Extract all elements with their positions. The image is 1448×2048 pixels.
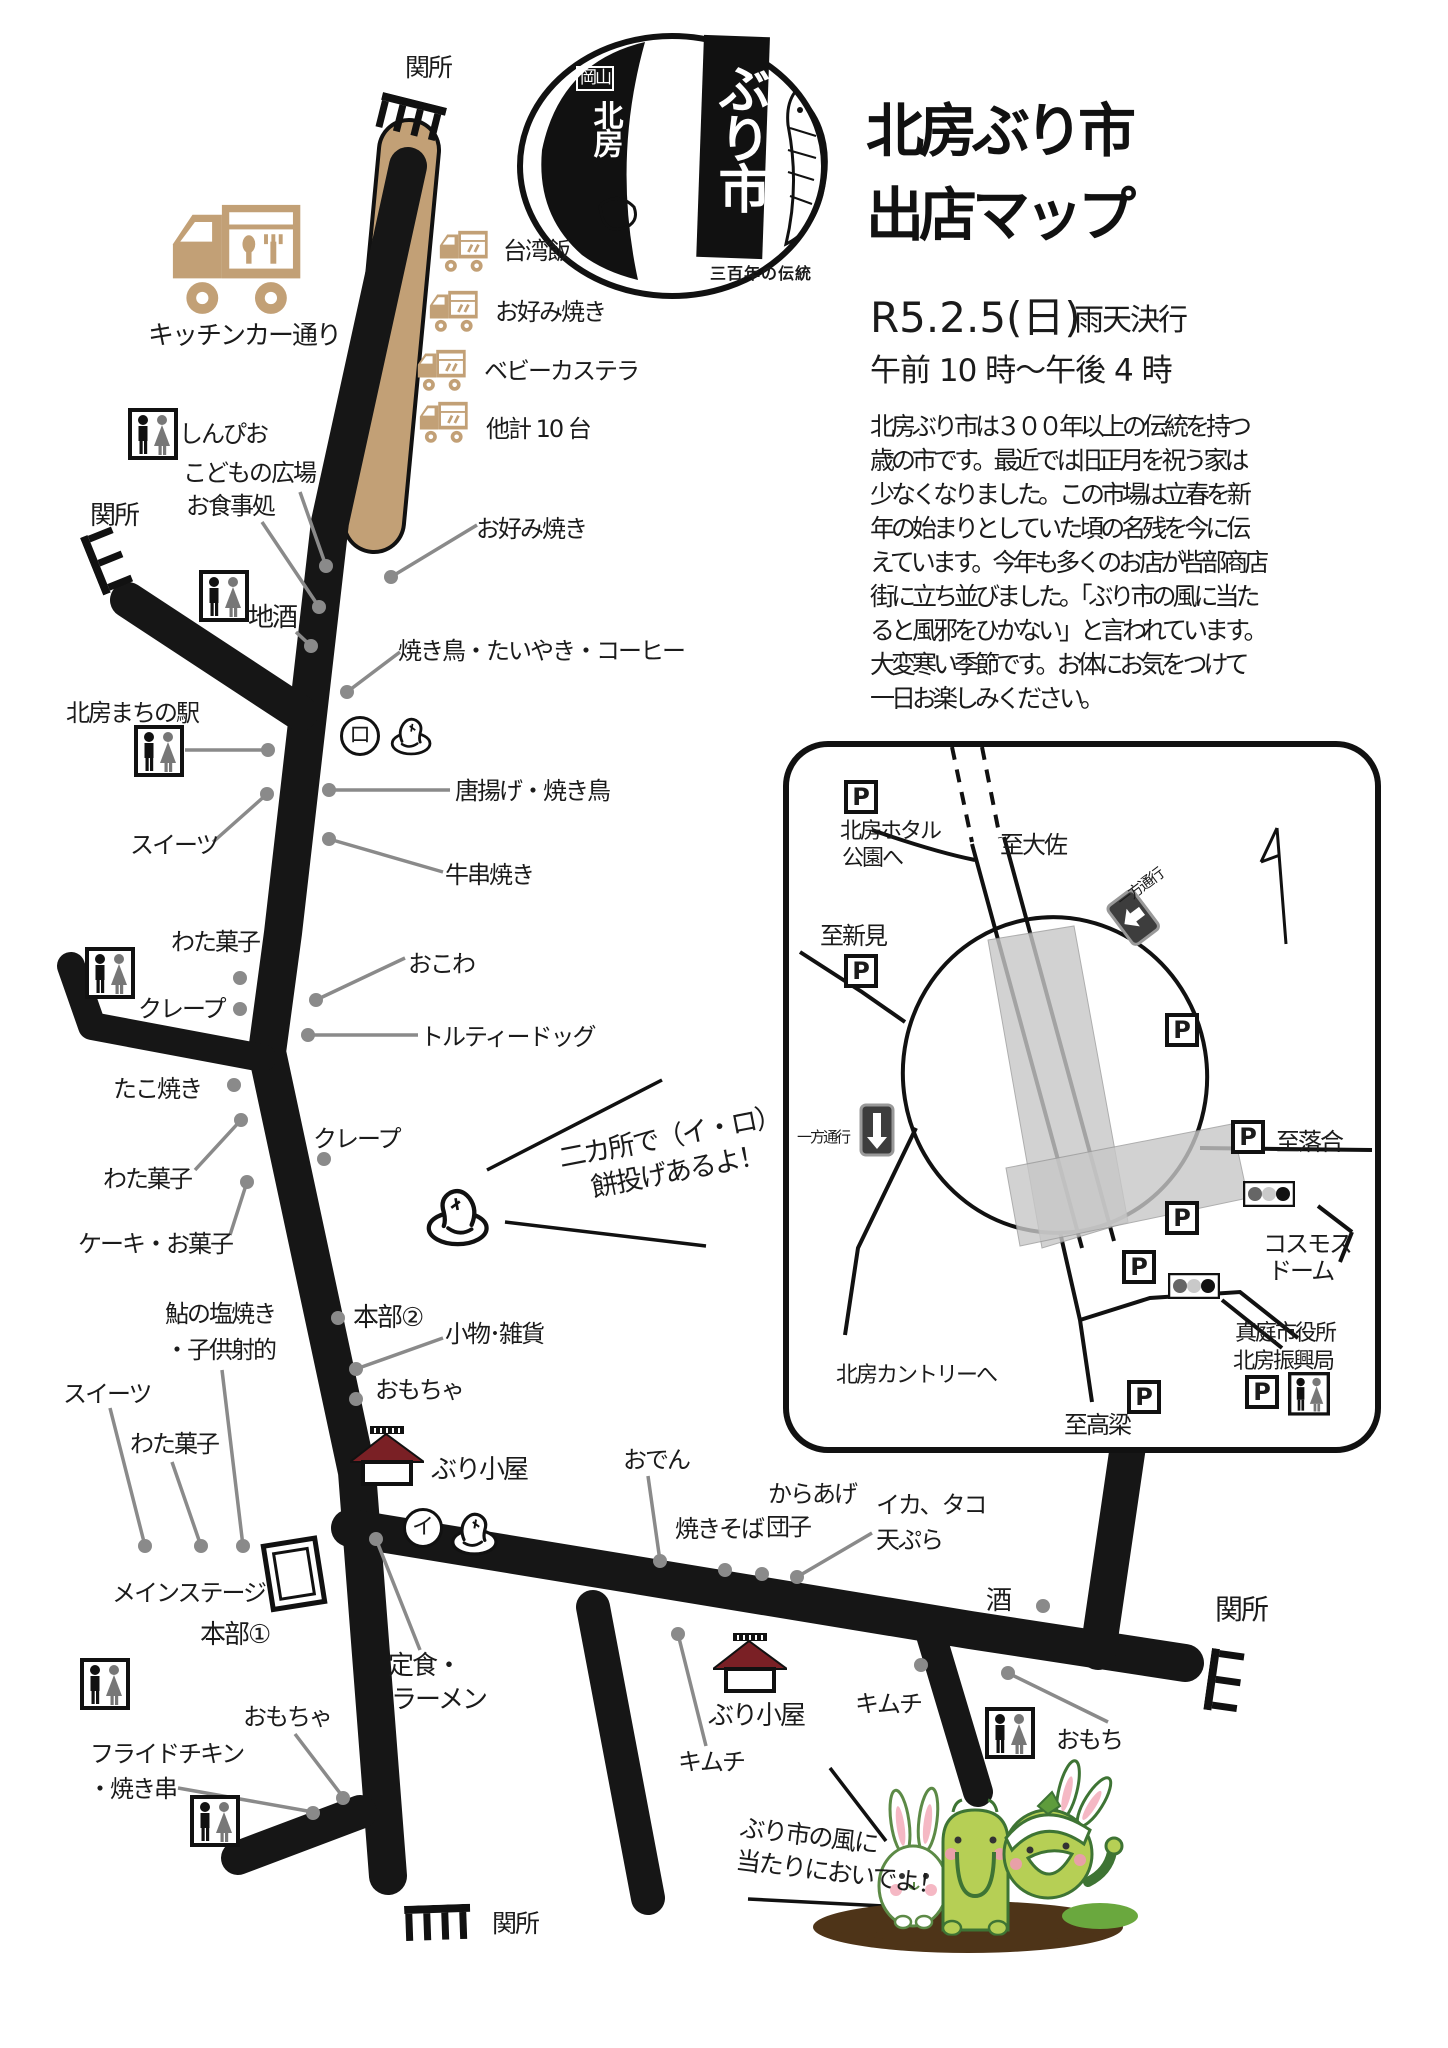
rain-or-shine-note: 雨天決行 — [1074, 302, 1186, 340]
mochi-mascot-icon — [392, 719, 430, 754]
kitchen-car-street-label: キッチンカー通り — [148, 320, 340, 353]
inset-to-niimi: 至新見 — [820, 921, 886, 951]
buri-hut-icon — [713, 1633, 787, 1691]
checkpoint-label-north: 関所 — [405, 52, 451, 83]
page-title-line2: 出店マップ — [866, 168, 1131, 252]
event-description: 北房ぶり市は３００年以上の伝統を持つ歳の市です。最近では旧正月を祝う家は少なくな… — [870, 410, 1266, 716]
event-date: R5.2.5(日) — [870, 292, 1081, 345]
logo-tagline: 三百年の伝統 — [710, 264, 812, 284]
stall-oden: おでん — [623, 1445, 689, 1475]
stall-oshokujidokoro: お食事処 — [186, 491, 274, 521]
checkpoint-label-south: 関所 — [492, 1908, 538, 1939]
stall-takoyaki: たこ焼き — [113, 1074, 201, 1104]
flyer-page: 岡山 北房 ぶり市 三百年の伝統 北房ぶり市 出店マップ R5.2.5(日) 雨… — [0, 0, 1448, 2048]
mochi-mascot-icon — [453, 1514, 496, 1554]
parking-icon: P — [1245, 1375, 1279, 1409]
checkpoint-label-west: 関所 — [90, 500, 138, 533]
mochi-mascot-icon — [429, 1191, 487, 1244]
stall-okonomiyaki: お好み焼き — [476, 514, 586, 544]
stall-kimchi-1: キムチ — [678, 1747, 744, 1777]
inset-to-daisa: 至大佐 — [1000, 830, 1066, 860]
checkpoint-label-east: 関所 — [1215, 1592, 1267, 1627]
toilet-icon — [192, 1797, 238, 1845]
stall-crepe-2: クレープ — [313, 1124, 400, 1154]
truck-label-others: 他計 10 台 — [486, 414, 590, 444]
stall-jizake: 地酒 — [248, 602, 296, 635]
stall-honbu-1: 本部① — [200, 1619, 269, 1652]
toilet-icon — [1290, 1374, 1329, 1414]
stall-kodomo-hiroba: こどもの広場 — [183, 458, 315, 488]
parking-icon: P — [1165, 1201, 1199, 1235]
kitchen-truck-icon — [420, 402, 468, 443]
inset-to-ochiai: 至落合 — [1276, 1127, 1342, 1157]
stall-sake: 酒 — [986, 1585, 1010, 1618]
main-stage-icon — [263, 1538, 324, 1609]
page-title-line1: 北房ぶり市 — [866, 84, 1131, 168]
truck-label-taiwan: 台湾飯 — [503, 236, 569, 266]
stall-fried-line1: フライドチキン — [90, 1739, 243, 1769]
stall-burigoya-2: ぶり小屋 — [708, 1700, 804, 1733]
event-hours: 午前 10 時～午後 4 時 — [870, 352, 1172, 391]
traffic-light-icon — [1244, 1182, 1294, 1206]
stall-omocha-2: おもちゃ — [243, 1702, 331, 1732]
toilet-icon — [130, 410, 176, 458]
green-rabbit-hat-mascot — [1004, 1759, 1122, 1898]
stall-ayu-line1: 鮎の塩焼き — [165, 1299, 275, 1329]
stall-omocha-1: おもちゃ — [375, 1375, 463, 1405]
logo-pref-label: 岡山 — [576, 66, 614, 91]
truck-label-okonomiyaki: お好み焼き — [495, 297, 605, 327]
kitchen-truck-icon — [440, 231, 488, 272]
inset-cosmos-dome-line2: ドーム — [1268, 1256, 1333, 1286]
stall-gyukushi: 牛串焼き — [445, 860, 533, 890]
parking-icon: P — [844, 954, 878, 988]
inset-cosmos-dome-line1: コスモス — [1263, 1229, 1351, 1259]
parking-icon: P — [1165, 1013, 1199, 1047]
gate-icon-east — [1203, 1648, 1244, 1714]
stall-crepe-1: クレープ — [138, 994, 225, 1024]
parking-icon: P — [1127, 1380, 1161, 1414]
stall-cake-okashi: ケーキ・お菓子 — [78, 1229, 232, 1259]
stall-tortilla-dog: トルティードッグ — [420, 1022, 595, 1052]
stall-watagashi-1: わた菓子 — [171, 927, 259, 957]
stall-sweets-2: スイーツ — [63, 1379, 151, 1409]
logo-market-label: ぶり市 — [706, 62, 771, 212]
toilet-icon — [136, 727, 182, 775]
stall-yakisoba: 焼きそば — [675, 1514, 763, 1544]
stall-ika-line1: イカ、タコ — [876, 1490, 986, 1520]
stall-karaage-yakitori: 唐揚げ・焼き鳥 — [455, 776, 609, 806]
kitchen-truck-large-icon — [173, 205, 300, 314]
inset-oneway-label-w: 一方通行 — [797, 1128, 849, 1147]
stall-honbu-2: 本部② — [353, 1302, 422, 1335]
inset-to-country: 北房カントリーへ — [836, 1362, 996, 1390]
toilet-icon — [82, 1660, 128, 1708]
stall-omochi: おもち — [1056, 1725, 1122, 1755]
inset-to-takahashi: 至高梁 — [1064, 1410, 1130, 1440]
kitchen-truck-icon — [418, 350, 466, 391]
toilet-icon — [987, 1709, 1033, 1757]
inset-hotaru-park-line2: 公園へ — [842, 845, 902, 873]
stall-teishoku-line1: 定食・ — [388, 1650, 460, 1683]
stall-fried-line2: ・焼き串 — [88, 1774, 176, 1804]
inset-hotaru-park-line1: 北房ホタル — [840, 818, 940, 846]
logo-town-label: 北房 — [586, 100, 624, 156]
traffic-light-icon — [1169, 1274, 1219, 1298]
stall-okowa: おこわ — [408, 949, 474, 979]
stall-ayu-line2: ・子供射的 — [165, 1335, 275, 1365]
toilet-icon — [201, 572, 247, 620]
stall-dango: 団子 — [766, 1512, 810, 1542]
stall-machinoeki: 北房まちの駅 — [66, 698, 198, 728]
stall-sweets-1: スイーツ — [130, 830, 218, 860]
stall-karaage: からあげ — [768, 1479, 856, 1509]
stall-main-stage: メインステージ — [112, 1578, 265, 1608]
stall-yakitori-taiyaki-coffee: 焼き鳥・たいやき・コーヒー — [398, 636, 684, 666]
inset-maniwa-office-line2: 北房振興局 — [1233, 1348, 1333, 1376]
stall-komono-zakka: 小物･雑貨 — [445, 1319, 543, 1349]
stall-shinpio: しんぴお — [179, 419, 267, 449]
stall-ika-line2: 天ぷら — [876, 1525, 942, 1555]
truck-label-castella: ベビーカステラ — [484, 356, 638, 386]
one-way-sign-icon — [861, 1105, 893, 1155]
parking-icon: P — [1122, 1250, 1156, 1284]
stall-teishoku-line2: ラーメン — [391, 1684, 486, 1717]
stall-watagashi-2: わた菓子 — [103, 1164, 191, 1194]
gate-icon-south — [404, 1904, 471, 1941]
toilet-icon — [87, 949, 133, 997]
spot-mark-i: イ — [403, 1508, 443, 1548]
spot-mark-ro: ロ — [340, 716, 380, 756]
parking-icon: P — [1231, 1120, 1265, 1154]
parking-icon: P — [844, 780, 878, 814]
green-blob-mascot — [943, 1800, 1008, 1935]
stall-kimchi-2: キムチ — [855, 1689, 921, 1719]
inset-maniwa-office-line1: 真庭市役所 — [1235, 1320, 1335, 1348]
stall-watagashi-3: わた菓子 — [130, 1429, 218, 1459]
stall-burigoya-1: ぶり小屋 — [431, 1454, 527, 1487]
kitchen-truck-icon — [430, 291, 478, 332]
